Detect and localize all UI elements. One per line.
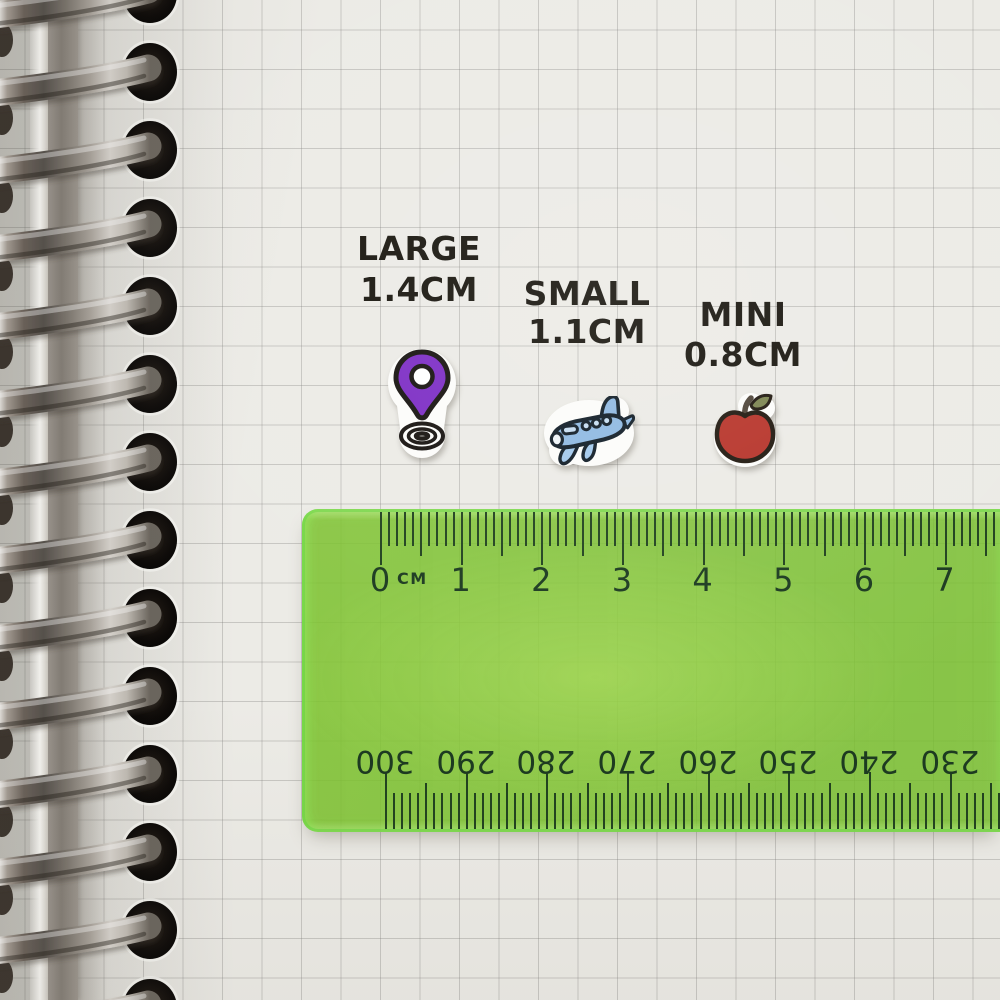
mm-scale-tick	[450, 793, 452, 829]
mm-tick	[485, 512, 487, 546]
mm-tick	[686, 512, 688, 546]
label-mini: MINI 0.8CM	[684, 295, 802, 375]
mm-scale-tick	[764, 793, 766, 829]
mm-tick	[936, 512, 938, 546]
mm-tick	[517, 512, 519, 546]
binder-ring	[0, 978, 179, 1000]
mm-tick	[767, 512, 769, 546]
mm-tick	[791, 512, 793, 546]
mm-scale-tick	[845, 793, 847, 829]
ruler-cm-number: 5	[761, 566, 805, 594]
label-large-title: LARGE	[357, 229, 481, 270]
mm-scale-tick	[982, 793, 984, 829]
mm-tick	[396, 512, 398, 546]
green-ruler: CM 01234567300290280270260250240230	[302, 509, 1000, 832]
mm-scale-tick	[740, 793, 742, 829]
mm-scale-half-tick	[990, 783, 992, 829]
mm-scale-cm-tick	[708, 772, 710, 829]
mm-scale-half-tick	[748, 783, 750, 829]
ruler-mm-number: 230	[918, 747, 982, 774]
mm-tick	[896, 512, 898, 546]
binder-ring	[0, 42, 179, 136]
ruler-mm-number: 270	[595, 747, 659, 774]
half-cm-tick	[662, 512, 664, 556]
mm-scale-tick	[441, 793, 443, 829]
mm-scale-tick	[716, 793, 718, 829]
mm-scale-tick	[433, 793, 435, 829]
mm-scale-tick	[901, 793, 903, 829]
mm-scale-tick	[643, 793, 645, 829]
mm-scale-tick	[538, 793, 540, 829]
mm-scale-tick	[579, 793, 581, 829]
mm-scale-tick	[966, 793, 968, 829]
mm-scale-tick	[393, 793, 395, 829]
mm-tick	[695, 512, 697, 546]
mm-scale-half-tick	[667, 783, 669, 829]
mm-tick	[614, 512, 616, 546]
mm-tick	[832, 512, 834, 546]
mm-scale-cm-tick	[869, 772, 871, 829]
half-cm-tick	[582, 512, 584, 556]
mm-scale-tick	[530, 793, 532, 829]
mm-tick	[727, 512, 729, 546]
binder-ring	[0, 276, 179, 370]
cm-tick	[864, 512, 866, 565]
mm-scale-tick	[603, 793, 605, 829]
binder-ring	[0, 432, 179, 526]
mm-tick	[840, 512, 842, 546]
ruler-cm-number: 7	[923, 566, 967, 594]
label-mini-size: 0.8CM	[684, 335, 802, 375]
mm-scale-half-tick	[829, 783, 831, 829]
mm-tick	[469, 512, 471, 546]
mm-scale-tick	[772, 793, 774, 829]
mm-scale-cm-tick	[466, 772, 468, 829]
mm-tick	[751, 512, 753, 546]
mm-tick	[953, 512, 955, 546]
binder-ring	[0, 666, 179, 760]
mm-tick	[477, 512, 479, 546]
ruler-mm-number: 280	[514, 747, 578, 774]
mm-tick	[436, 512, 438, 546]
cm-tick	[541, 512, 543, 565]
mm-tick	[670, 512, 672, 546]
mm-scale-tick	[554, 793, 556, 829]
binder-ring	[0, 588, 179, 682]
apple-body	[717, 413, 773, 461]
mm-tick	[606, 512, 608, 546]
ruler-cm-number: 4	[681, 566, 725, 594]
binder-ring	[0, 822, 179, 916]
mm-scale-tick	[522, 793, 524, 829]
ruler-cm-number: 2	[519, 566, 563, 594]
mm-tick	[525, 512, 527, 546]
mm-tick	[598, 512, 600, 546]
mm-tick	[872, 512, 874, 546]
mm-scale-half-tick	[506, 783, 508, 829]
mm-scale-tick	[780, 793, 782, 829]
location-pin-sticker	[386, 346, 458, 460]
cm-tick	[380, 512, 382, 565]
apple-icon	[717, 395, 773, 461]
mm-tick	[807, 512, 809, 546]
mm-tick	[549, 512, 551, 546]
mm-scale-tick	[562, 793, 564, 829]
mm-scale-tick	[756, 793, 758, 829]
mm-scale-tick	[683, 793, 685, 829]
airplane-sticker	[543, 396, 636, 468]
mm-tick	[630, 512, 632, 546]
mm-tick	[759, 512, 761, 546]
mm-tick	[404, 512, 406, 546]
label-large: LARGE 1.4CM	[357, 229, 481, 310]
spiral-binding-rings	[0, 0, 215, 1000]
mm-scale-tick	[401, 793, 403, 829]
mm-tick	[638, 512, 640, 546]
mm-tick	[493, 512, 495, 546]
half-cm-tick	[904, 512, 906, 556]
binder-ring	[0, 198, 179, 292]
mm-tick	[646, 512, 648, 546]
mm-scale-tick	[917, 793, 919, 829]
mm-scale-tick	[974, 793, 976, 829]
mm-scale-tick	[796, 793, 798, 829]
pin-hole	[412, 366, 433, 387]
mm-scale-tick	[458, 793, 460, 829]
cm-tick	[945, 512, 947, 565]
mm-tick	[711, 512, 713, 546]
mm-tick	[445, 512, 447, 546]
mm-scale-tick	[861, 793, 863, 829]
mm-scale-tick	[409, 793, 411, 829]
mm-scale-tick	[482, 793, 484, 829]
mm-scale-tick	[933, 793, 935, 829]
label-large-size: 1.4CM	[357, 270, 481, 311]
ruler-cm-number: 0	[358, 566, 402, 594]
mm-scale-tick	[732, 793, 734, 829]
ruler-mm-number: 240	[837, 747, 901, 774]
mm-tick	[888, 512, 890, 546]
mm-tick	[977, 512, 979, 546]
mm-tick	[453, 512, 455, 546]
mm-scale-cm-tick	[950, 772, 952, 829]
mm-scale-tick	[804, 793, 806, 829]
label-small-title: SMALL	[524, 275, 651, 313]
mm-scale-tick	[691, 793, 693, 829]
mm-tick	[735, 512, 737, 546]
ruler-mm-number: 260	[676, 747, 740, 774]
mm-scale-tick	[659, 793, 661, 829]
mm-scale-tick	[812, 793, 814, 829]
mm-scale-tick	[941, 793, 943, 829]
mm-tick	[719, 512, 721, 546]
mm-scale-tick	[877, 793, 879, 829]
ruler-cm-number: 3	[600, 566, 644, 594]
mm-scale-tick	[853, 793, 855, 829]
cm-tick	[461, 512, 463, 565]
binder-ring	[0, 354, 179, 448]
mm-scale-cm-tick	[385, 772, 387, 829]
mm-tick	[590, 512, 592, 546]
half-cm-tick	[420, 512, 422, 556]
mm-tick	[428, 512, 430, 546]
mm-scale-tick	[498, 793, 500, 829]
mm-scale-tick	[925, 793, 927, 829]
mm-scale-tick	[417, 793, 419, 829]
cm-tick	[703, 512, 705, 565]
mm-tick	[816, 512, 818, 546]
mm-scale-cm-tick	[627, 772, 629, 829]
mm-tick	[799, 512, 801, 546]
label-small: SMALL 1.1CM	[524, 275, 651, 351]
mm-scale-tick	[885, 793, 887, 829]
mm-tick	[912, 512, 914, 546]
mm-tick	[565, 512, 567, 546]
mm-tick	[412, 512, 414, 546]
binder-ring	[0, 744, 179, 838]
notebook-photo: LARGE 1.4CM SMALL 1.1CM MINI 0.8CM	[0, 0, 1000, 1000]
mm-tick	[533, 512, 535, 546]
mm-tick	[961, 512, 963, 546]
mm-scale-tick	[490, 793, 492, 829]
ruler-mm-number: 250	[756, 747, 820, 774]
label-small-size: 1.1CM	[524, 313, 651, 351]
mm-tick	[509, 512, 511, 546]
mm-tick	[920, 512, 922, 546]
mm-scale-tick	[570, 793, 572, 829]
mm-scale-tick	[893, 793, 895, 829]
mm-scale-tick	[837, 793, 839, 829]
binder-ring	[0, 510, 179, 604]
mm-tick	[557, 512, 559, 546]
mm-scale-half-tick	[909, 783, 911, 829]
mm-scale-tick	[635, 793, 637, 829]
mm-tick	[928, 512, 930, 546]
mm-tick	[388, 512, 390, 546]
mm-tick	[654, 512, 656, 546]
mm-tick	[848, 512, 850, 546]
mm-scale-tick	[700, 793, 702, 829]
cm-tick	[783, 512, 785, 565]
mm-scale-tick	[474, 793, 476, 829]
mm-tick	[856, 512, 858, 546]
mm-scale-cm-tick	[788, 772, 790, 829]
binder-ring	[0, 900, 179, 994]
mm-scale-tick	[611, 793, 613, 829]
mm-scale-cm-tick	[546, 772, 548, 829]
mm-scale-tick	[724, 793, 726, 829]
ruler-cm-number: 6	[842, 566, 886, 594]
mm-scale-tick	[514, 793, 516, 829]
label-mini-title: MINI	[684, 295, 802, 335]
ruler-cm-number: 1	[439, 566, 483, 594]
mm-tick	[969, 512, 971, 546]
ruler-mm-number: 290	[434, 747, 498, 774]
ruler-mm-number: 300	[353, 747, 417, 774]
mm-tick	[775, 512, 777, 546]
mm-scale-tick	[619, 793, 621, 829]
mm-scale-tick	[821, 793, 823, 829]
mm-tick	[880, 512, 882, 546]
half-cm-tick	[743, 512, 745, 556]
mm-scale-tick	[675, 793, 677, 829]
half-cm-tick	[501, 512, 503, 556]
mm-tick	[993, 512, 995, 546]
mm-scale-tick	[958, 793, 960, 829]
half-cm-tick	[985, 512, 987, 556]
mm-scale-half-tick	[425, 783, 427, 829]
mm-scale-tick	[595, 793, 597, 829]
half-cm-tick	[824, 512, 826, 556]
binder-ring	[0, 120, 179, 214]
mm-tick	[574, 512, 576, 546]
mm-tick	[678, 512, 680, 546]
cm-tick	[622, 512, 624, 565]
mm-scale-half-tick	[587, 783, 589, 829]
apple-sticker	[708, 391, 783, 468]
mm-scale-tick	[651, 793, 653, 829]
